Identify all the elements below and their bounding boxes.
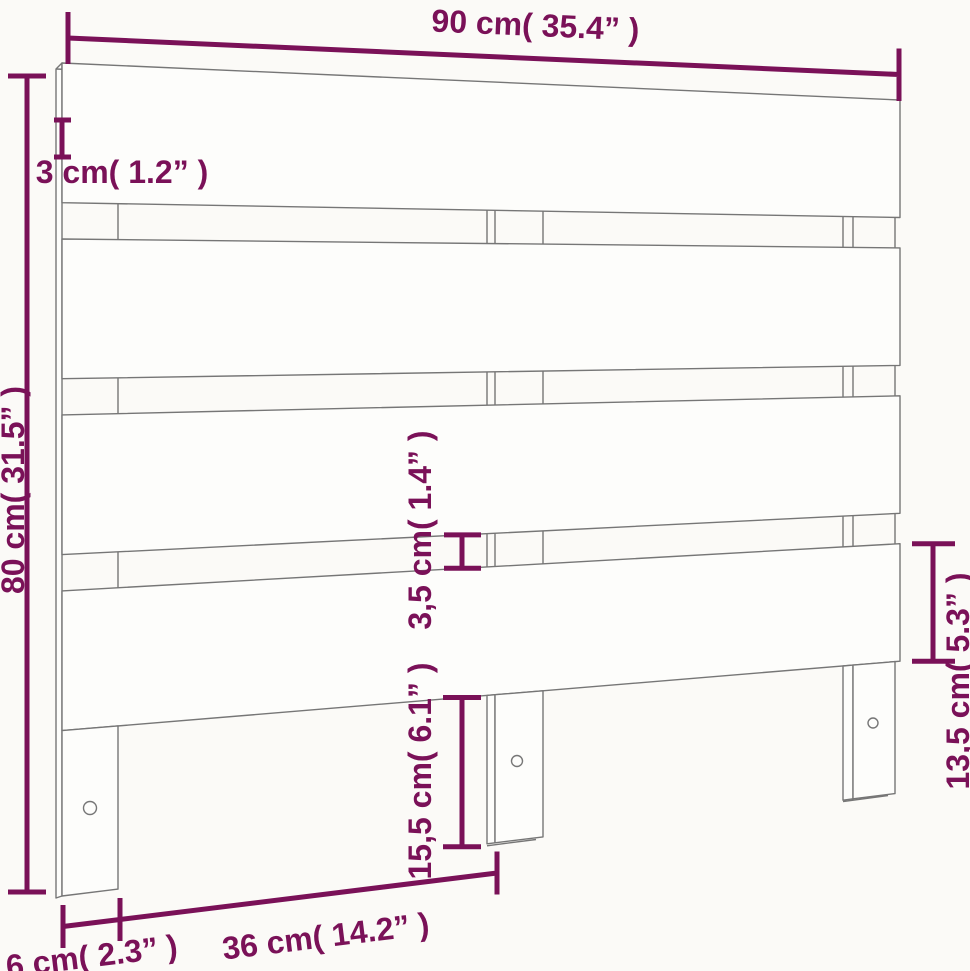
slat-4: [62, 544, 900, 731]
dim-slat-height-label: 13,5 cm( 5.3” ): [940, 573, 970, 790]
dim-height-label: 80 cm( 31.5” ): [0, 386, 31, 594]
dim-thickness-label: 3 cm( 1.2” ): [36, 154, 209, 190]
dim-gap-label: 3,5 cm( 1.4” ): [402, 430, 438, 629]
dim-leg-spacing-label: 36 cm( 14.2” ): [220, 906, 431, 967]
leg-right-front: [853, 662, 895, 799]
dim-width-label: 90 cm( 35.4” ): [431, 2, 640, 47]
slat-2: [62, 239, 900, 379]
dim-leg-width-label: 6 cm( 2.3” ): [4, 928, 180, 971]
headboard-dimension-diagram: 90 cm( 35.4” ) 3 cm( 1.2” ) 80 cm( 31.5”…: [0, 0, 970, 971]
dim-height: 80 cm( 31.5” ): [0, 76, 46, 892]
dim-leg-height-line: [443, 698, 481, 847]
dim-leg-height-label: 15,5 cm( 6.1” ): [402, 663, 438, 880]
leg-right-side: [843, 665, 853, 800]
slat-3: [62, 396, 900, 555]
dim-gap-line: [444, 535, 481, 568]
leg-left: [62, 726, 118, 896]
dim-slat-height: 13,5 cm( 5.3” ): [912, 544, 970, 790]
slat-1: [62, 63, 900, 218]
leg-middle-side: [487, 695, 495, 844]
